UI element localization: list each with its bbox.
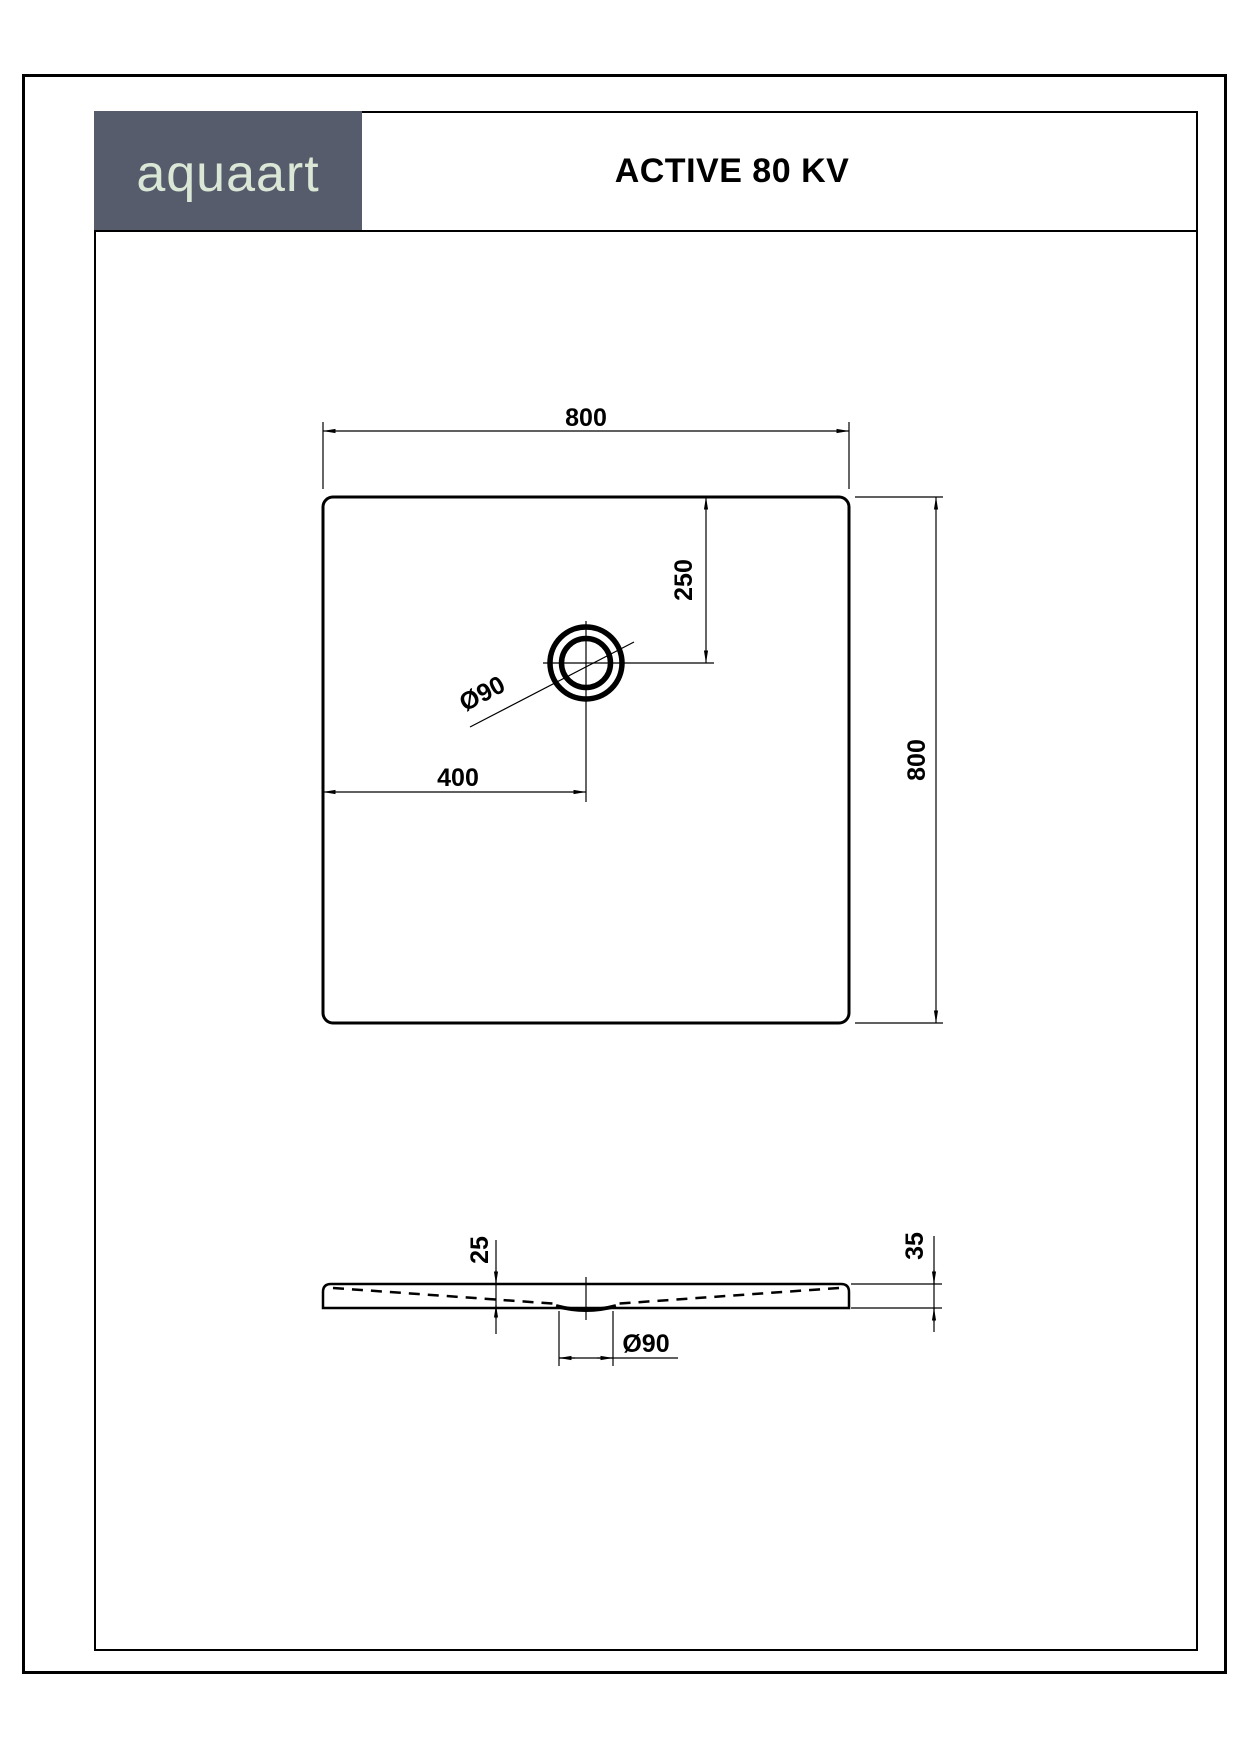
side-view: 25 35 Ø90 xyxy=(323,1232,942,1366)
dimension-drain-90: Ø90 xyxy=(559,1311,678,1366)
dimension-label-offset-left: 400 xyxy=(437,764,479,792)
dimension-label-width: 800 xyxy=(565,404,607,432)
dimension-height-800: 800 xyxy=(855,497,943,1023)
top-view: 800 800 250 xyxy=(323,404,943,1023)
dimension-label-depth: 25 xyxy=(466,1236,494,1264)
dimension-width-800: 800 xyxy=(323,404,849,489)
technical-drawing: 800 800 250 xyxy=(0,0,1240,1754)
dimension-edge-height-35: 35 xyxy=(851,1232,942,1332)
dimension-label-height: 800 xyxy=(903,739,931,781)
dimension-label-offset-top: 250 xyxy=(670,559,698,601)
drawing-sheet: aquaart ACTIVE 80 KV 800 xyxy=(0,0,1240,1754)
drain-diameter-label: Ø90 xyxy=(622,1330,669,1358)
dimension-label-edge-height: 35 xyxy=(901,1232,929,1260)
